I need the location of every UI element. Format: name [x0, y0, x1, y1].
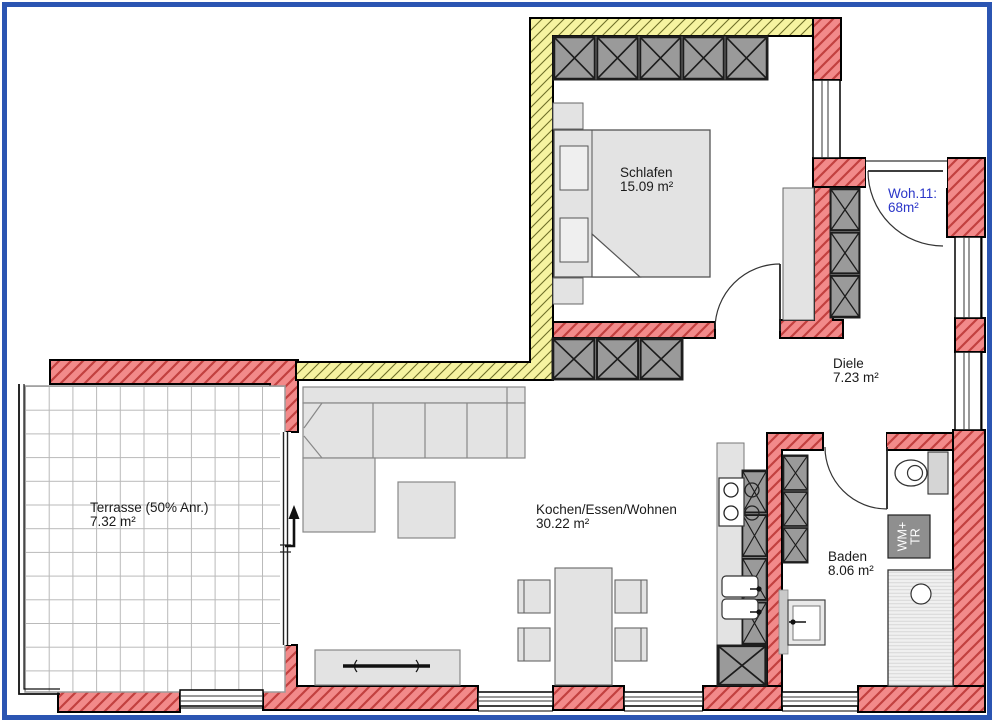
room-name: Diele — [833, 357, 879, 371]
dresser — [783, 188, 814, 320]
wall-segment — [553, 686, 624, 710]
room-label-wohnen: Kochen/Essen/Wohnen 30.22 m² — [536, 503, 677, 531]
tv-sideboard — [315, 650, 460, 685]
window — [955, 237, 981, 318]
room-name: Schlafen — [620, 166, 673, 180]
dining-chair — [615, 628, 647, 661]
room-name: Kochen/Essen/Wohnen — [536, 503, 677, 517]
nightstand — [553, 103, 583, 129]
window — [782, 692, 858, 706]
wall-segment — [947, 158, 985, 237]
room-area: 7.23 m² — [833, 371, 879, 385]
bedroom-door — [715, 264, 780, 338]
nightstand — [553, 278, 583, 304]
shower-drain — [911, 584, 931, 604]
bath-door — [824, 432, 887, 509]
room-name: Terrasse (50% Anr.) — [90, 501, 209, 515]
bath-sink — [779, 590, 825, 654]
pillow — [560, 146, 588, 190]
window — [180, 690, 263, 706]
dining-chair — [518, 580, 550, 613]
shower — [888, 570, 953, 686]
washer-dryer-label: WM+ TR — [887, 512, 932, 562]
bed — [554, 130, 710, 277]
window — [624, 692, 703, 706]
bedroom-wardrobe — [553, 36, 768, 80]
room-area: 15.09 m² — [620, 180, 673, 194]
door-arc — [825, 447, 887, 509]
wall-segment — [813, 158, 866, 187]
unit-number: Woh.11: — [888, 187, 937, 201]
room-area: 30.22 m² — [536, 517, 677, 531]
washer-line: WM+ — [897, 522, 910, 552]
pillow — [560, 218, 588, 262]
wall-segment — [953, 430, 985, 712]
window — [478, 692, 553, 706]
wall-segment — [813, 18, 841, 80]
terrace-door — [280, 432, 291, 645]
wall-segment — [955, 318, 985, 352]
dining-chair — [615, 580, 647, 613]
wall-segment — [886, 433, 953, 450]
floor-plan: Schlafen 15.09 m² Woh.11: 68m² Diele 7.2… — [0, 0, 1000, 728]
wall-segment — [553, 322, 715, 338]
hall-wardrobe — [830, 188, 860, 318]
wall-segment — [858, 686, 985, 712]
room-name: Baden — [828, 550, 874, 564]
unit-area: 68m² — [888, 201, 937, 215]
dining-set — [518, 568, 647, 685]
room-label-schlafen: Schlafen 15.09 m² — [620, 166, 673, 194]
room-label-diele: Diele 7.23 m² — [833, 357, 879, 385]
room-label-terrasse: Terrasse (50% Anr.) 7.32 m² — [90, 501, 209, 529]
window — [813, 80, 840, 158]
toilet — [895, 452, 948, 494]
room-area: 7.32 m² — [90, 515, 209, 529]
door-arc — [715, 264, 780, 329]
dining-chair — [518, 628, 550, 661]
dining-table — [555, 568, 612, 685]
window — [955, 352, 981, 430]
coffee-table — [398, 482, 455, 538]
wall-segment — [703, 686, 782, 710]
room-label-baden: Baden 8.06 m² — [828, 550, 874, 578]
room-area: 8.06 m² — [828, 564, 874, 578]
terrace-tiles — [25, 386, 285, 692]
bath-cabinet — [783, 455, 808, 563]
unit-label: Woh.11: 68m² — [888, 187, 937, 215]
living-wardrobe — [552, 338, 683, 380]
kitchen — [717, 443, 767, 686]
washer-line: TR — [909, 528, 922, 545]
